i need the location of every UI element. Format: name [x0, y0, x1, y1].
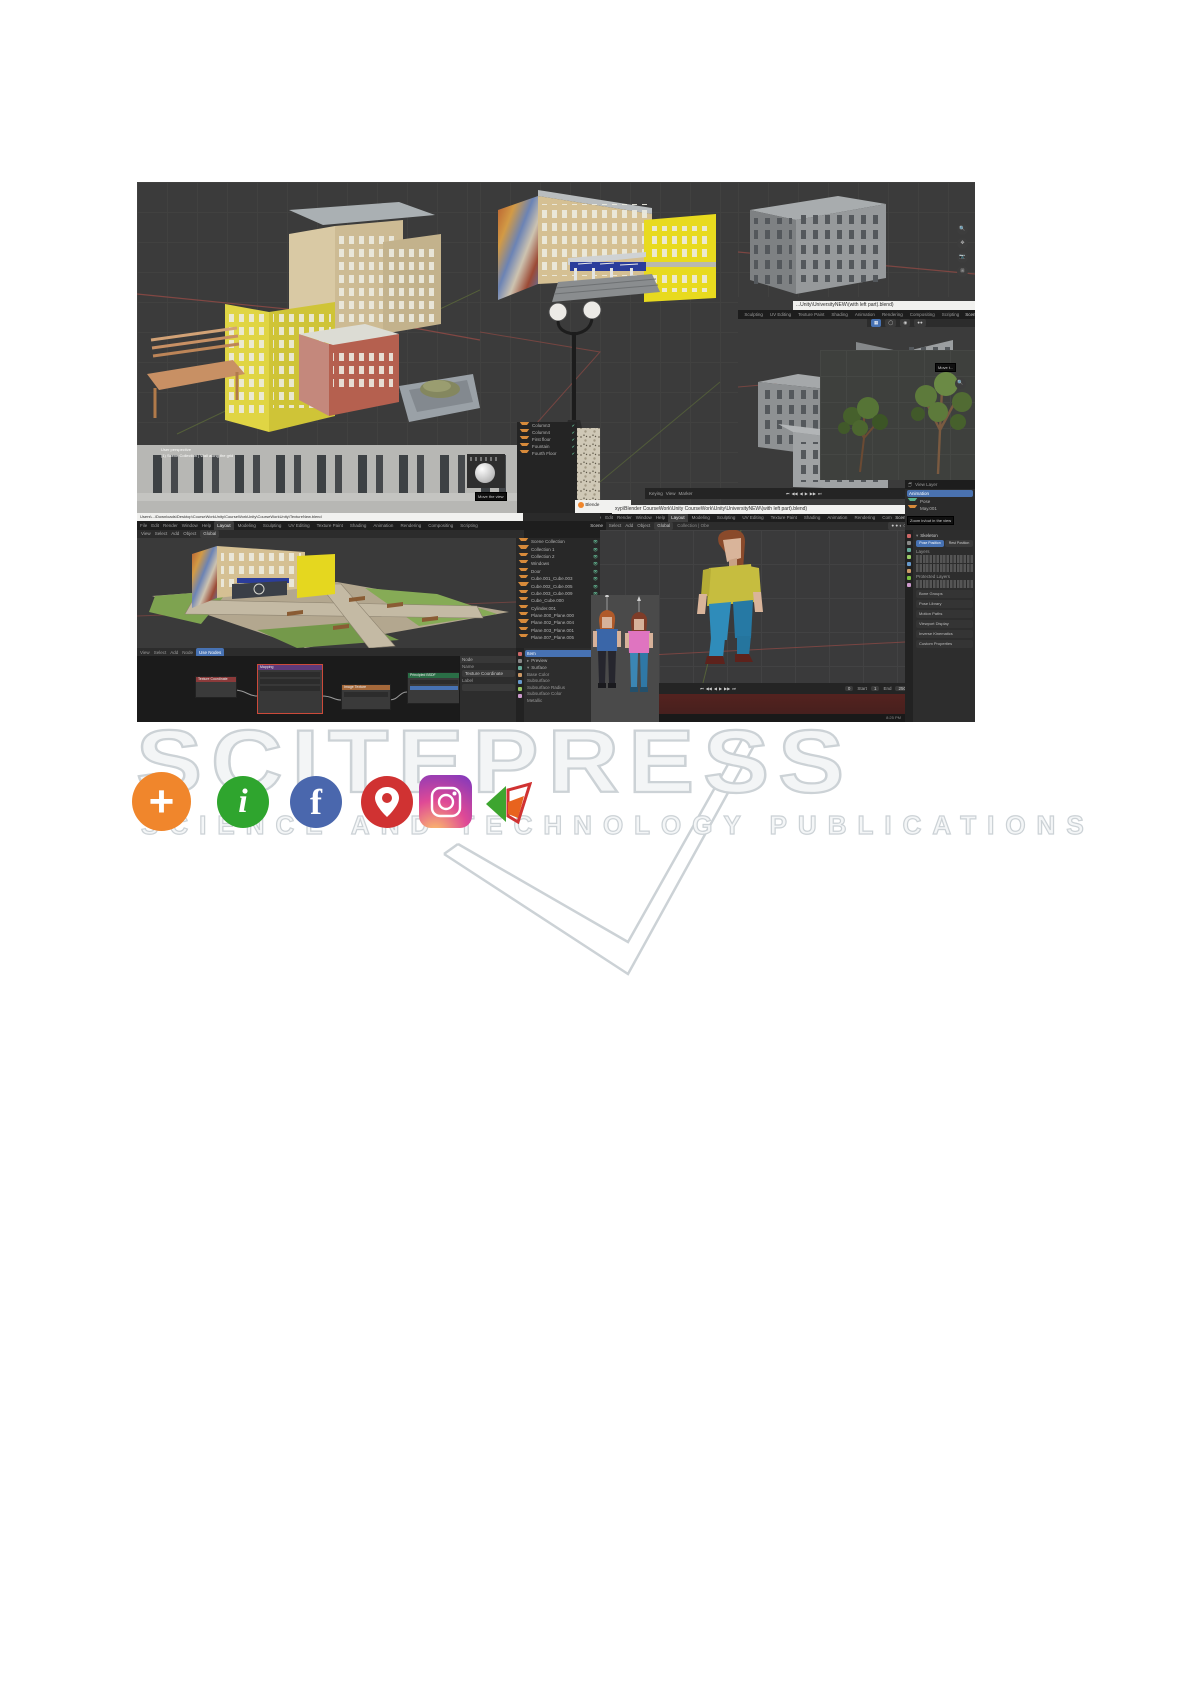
- menu-item[interactable]: Node: [182, 648, 193, 656]
- workspace-tab[interactable]: UV Editing: [739, 513, 766, 522]
- info-button[interactable]: i: [217, 776, 269, 828]
- properties-tab-icons[interactable]: [516, 648, 524, 722]
- playback-button[interactable]: ⏭: [732, 686, 736, 691]
- rest-position-button[interactable]: Rest Position: [945, 540, 973, 547]
- node-principled-bsdf[interactable]: Principled BSDF: [407, 672, 461, 704]
- workspace-tab[interactable]: Modeling: [235, 521, 259, 530]
- properties-section[interactable]: Motion Paths: [916, 610, 973, 618]
- outliner-small[interactable]: Column3✔Column4✔First floor✔Fountain✔Fou…: [517, 422, 577, 513]
- outliner-item[interactable]: Plane.007_Plane.005👁: [516, 634, 600, 641]
- view-layer-header: 🗇 View Layer: [905, 480, 975, 489]
- protected-layers-grid[interactable]: [916, 580, 973, 588]
- workspace-tab[interactable]: Texture Paint: [314, 521, 346, 530]
- toolrow-anim-window: View Select Add Object Global Collection…: [591, 522, 913, 530]
- workspace-tab[interactable]: Texture Paint: [795, 310, 827, 319]
- zoom-view-button[interactable]: 🔍: [957, 224, 968, 235]
- orientation-dropdown[interactable]: Global: [654, 522, 673, 530]
- playback-controls: ⏮◀◀◀▶▶▶⏭: [786, 491, 822, 496]
- viewport-menu[interactable]: Add: [171, 530, 179, 538]
- viewport-textured-campus[interactable]: [137, 538, 516, 648]
- instagram-icon: [429, 785, 463, 819]
- proportional-edit[interactable]: ◯: [885, 319, 896, 327]
- workspace-tab[interactable]: Sculpting: [714, 513, 739, 522]
- anim-item[interactable]: Pose: [905, 498, 975, 505]
- workspace-tab[interactable]: Scripting: [939, 310, 963, 319]
- menu-item[interactable]: Render: [617, 513, 632, 522]
- frame-field[interactable]: 0: [845, 686, 854, 691]
- menu-item[interactable]: File: [140, 521, 147, 530]
- workspace-tab[interactable]: Layout: [668, 513, 688, 522]
- textured-campus-scene: [137, 538, 516, 648]
- pose-properties-panel: 🗇 View Layer Animation Pose May.001 Zoom…: [905, 480, 975, 722]
- colored-buildings-scene: [137, 182, 480, 445]
- titlebar-middle-window[interactable]: ...Unity\UniversityNEW\(with left part).…: [793, 301, 975, 310]
- overlays-toggle[interactable]: ◉: [900, 319, 910, 327]
- character-model: [697, 530, 763, 664]
- workspace-tab[interactable]: Rendering: [397, 521, 424, 530]
- header-middle-window: LayoutModelingSculptingUV EditingTexture…: [738, 310, 975, 319]
- section-surface[interactable]: ▾Surface: [525, 664, 599, 671]
- playback-button[interactable]: ◀◀: [791, 491, 797, 496]
- workspace-tab[interactable]: Rendering: [851, 513, 878, 522]
- toolrow-middle-window: ▦ ◯ ◉ ●●: [867, 319, 975, 327]
- playback-button[interactable]: ⏮: [700, 686, 704, 691]
- pose-position-button[interactable]: Pose Position: [916, 540, 944, 547]
- character-pink-shirt: [625, 596, 653, 692]
- outliner-item[interactable]: First floor✔: [517, 436, 577, 443]
- outliner-item[interactable]: Collection 1👁: [516, 545, 600, 552]
- workspace-tabs: LayoutModelingSculptingUV EditingTexture…: [741, 310, 962, 319]
- menu-item[interactable]: Add: [170, 648, 178, 656]
- playback-button[interactable]: ⏮: [786, 491, 790, 496]
- menu-item[interactable]: Edit: [151, 521, 159, 530]
- workspace-tab[interactable]: Scripting: [457, 521, 481, 530]
- playback-button[interactable]: ◀: [714, 686, 717, 691]
- outliner-item[interactable]: Cube.001_Cube.003👁: [516, 575, 600, 582]
- publisher-logo-icon: [484, 782, 532, 824]
- instagram-button[interactable]: [419, 775, 472, 828]
- figure-collage: User perspective (1) Scene Collection | …: [137, 182, 975, 722]
- workspace-tab[interactable]: Animation: [370, 521, 396, 530]
- start-frame-field[interactable]: 1: [871, 686, 880, 691]
- facebook-button[interactable]: f: [290, 776, 342, 828]
- outliner-main[interactable]: ⌕ Scene Collection👁Collection 1👁Collecti…: [516, 530, 600, 648]
- view-layer-icon: 🗇: [908, 480, 912, 489]
- outliner-item[interactable]: Plane.002_Plane.004👁: [516, 619, 600, 626]
- outliner-item[interactable]: Column3✔: [517, 422, 577, 429]
- viewport-colored-buildings[interactable]: [137, 182, 480, 445]
- location-pin-button[interactable]: [361, 776, 413, 828]
- menu-item[interactable]: Window: [182, 521, 198, 530]
- outliner-item[interactable]: Plane.000_Plane.000👁: [516, 612, 600, 619]
- outliner-item[interactable]: Fourth Floor✔: [517, 450, 577, 457]
- playback-button[interactable]: ⏭: [818, 491, 822, 496]
- fountain-model: [399, 374, 480, 422]
- use-nodes-checkbox[interactable]: Use Nodes: [196, 648, 224, 656]
- menu-item[interactable]: Render: [163, 521, 178, 530]
- clock: 8:25 PM: [886, 715, 901, 720]
- snap-toggle[interactable]: ▦: [871, 319, 881, 327]
- playback-button[interactable]: ▶: [805, 491, 808, 496]
- properties-section[interactable]: Pose Library: [916, 600, 973, 608]
- playback-button[interactable]: ▶: [719, 686, 722, 691]
- viewport-menu[interactable]: Add: [625, 522, 633, 530]
- node-label-field[interactable]: [462, 684, 515, 691]
- move-view-tooltip-short: Move t...: [935, 363, 956, 372]
- workspace-tab[interactable]: Shading: [801, 513, 824, 522]
- material-field[interactable]: Metallic: [525, 697, 599, 704]
- menu-item[interactable]: View: [140, 648, 150, 656]
- viewport-overlay-text: User perspective (1) Scene Collection | …: [161, 447, 233, 459]
- viewport-menu[interactable]: Select: [155, 530, 168, 538]
- scene-selector[interactable]: Scene: [965, 310, 975, 319]
- outliner-item[interactable]: Scene Collection👁: [516, 538, 600, 545]
- header-anim-window: FileEditRenderWindowHelp LayoutModelingS…: [591, 513, 911, 522]
- ortho-toggle-button[interactable]: ⊞: [957, 266, 968, 277]
- playback-button[interactable]: ◀◀: [706, 686, 712, 691]
- outliner-item[interactable]: Cube.002_Cube.005👁: [516, 582, 600, 589]
- section-preview[interactable]: ▸Preview: [525, 657, 599, 664]
- node-name-field[interactable]: Texture Coordinate: [462, 670, 515, 677]
- menu-item[interactable]: Window: [636, 513, 652, 522]
- anim-item[interactable]: May.001: [905, 505, 975, 512]
- viewport-menu[interactable]: Object: [637, 522, 650, 530]
- menu-item[interactable]: Select: [154, 648, 167, 656]
- outliner-item[interactable]: Door👁: [516, 568, 600, 575]
- node-sidebar[interactable]: Node Name Texture Coordinate Label: [459, 656, 516, 722]
- properties-tab-icons[interactable]: [905, 530, 913, 722]
- playback-controls: ⏮◀◀◀▶▶▶⏭: [700, 686, 736, 691]
- shader-ball[interactable]: [475, 463, 495, 483]
- window-texture-editor: Users\...\Downloads\Desktop\CourseWorkUn…: [137, 513, 600, 722]
- anim-item[interactable]: Animation: [907, 490, 973, 497]
- location-pin-icon: [372, 785, 402, 819]
- viewport-menu[interactable]: View: [141, 530, 151, 538]
- workspace-tab[interactable]: Shading: [828, 310, 851, 319]
- properties-section[interactable]: Bone Groups: [916, 590, 973, 598]
- node-editor-header: ViewSelectAddNode Use Nodes: [137, 648, 516, 656]
- properties-section[interactable]: Inverse Kinematics: [916, 630, 973, 638]
- publisher-logo-button[interactable]: [484, 782, 532, 824]
- viewport-clay-building[interactable]: [738, 182, 975, 297]
- outliner-item[interactable]: Cube_Cube.000👁: [516, 597, 600, 604]
- outliner-item[interactable]: Windows👁: [516, 560, 600, 567]
- workspace-tab[interactable]: Sculpting: [741, 310, 766, 319]
- properties-section[interactable]: Custom Properties: [916, 640, 973, 648]
- outliner-item[interactable]: Plane.003_Plane.001👁: [516, 627, 600, 634]
- playback-button[interactable]: ▶▶: [724, 686, 730, 691]
- paper-page: SCITEPRESS SCIENCE AND TECHNOLOGY PUBLIC…: [0, 0, 1191, 1684]
- skeleton-section[interactable]: ▾Skeleton: [914, 532, 975, 539]
- wall-windows: [137, 455, 517, 493]
- outliner-item[interactable]: Collection 2👁: [516, 553, 600, 560]
- menu-item[interactable]: Help: [202, 521, 211, 530]
- menu-item[interactable]: Help: [656, 513, 665, 522]
- orientation-dropdown[interactable]: Global: [200, 530, 219, 538]
- toolrow-left-window: View Select Add Object Global: [137, 530, 524, 538]
- titlebar-left-window[interactable]: Users\...\Downloads\Desktop\CourseWorkUn…: [137, 513, 523, 521]
- viewport-menu[interactable]: Select: [609, 522, 622, 530]
- workspace-tab[interactable]: UV Editing: [767, 310, 794, 319]
- share-plus-button[interactable]: +: [132, 772, 191, 831]
- move-view-tooltip: Move the view: [475, 492, 507, 501]
- workspace-tab[interactable]: Layout: [214, 521, 234, 530]
- tree-left: [838, 397, 888, 472]
- workspace-tabs: LayoutModelingSculptingUV EditingTexture…: [214, 521, 481, 530]
- camera-view-button[interactable]: 📷: [957, 252, 968, 263]
- workspace-tab[interactable]: Animation: [852, 310, 878, 319]
- workspace-tab[interactable]: Animation: [824, 513, 850, 522]
- playback-button[interactable]: ▶▶: [810, 491, 816, 496]
- material-preview-chip: [467, 454, 505, 488]
- watermark-subtitle: SCIENCE AND TECHNOLOGY PUBLICATIONS: [141, 810, 1095, 841]
- armature-layers-grid[interactable]: [916, 564, 973, 572]
- outliner-item[interactable]: Cylinder.001👁: [516, 605, 600, 612]
- workspace-tab[interactable]: Shading: [347, 521, 370, 530]
- playback-button[interactable]: ◀: [800, 491, 803, 496]
- menu-item[interactable]: Edit: [605, 513, 613, 522]
- material-slot[interactable]: Item: [525, 650, 599, 657]
- scene-selector[interactable]: Scene: [590, 521, 603, 530]
- node-image-texture[interactable]: Image Texture: [341, 684, 391, 710]
- node-texture-coordinate[interactable]: Texture Coordinate: [195, 676, 237, 698]
- zoom-view-tooltip: Zoom in/out in the view: [907, 516, 954, 525]
- zoom-view-button[interactable]: 🔍: [955, 378, 966, 389]
- blender-logo-icon: [578, 502, 584, 508]
- workspace-tab[interactable]: Compositing: [879, 513, 892, 522]
- workspace-tabs: LayoutModelingSculptingUV EditingTexture…: [668, 513, 892, 522]
- node-editor[interactable]: ViewSelectAddNode Use Nodes Texture Coor…: [137, 648, 516, 722]
- move-view-button[interactable]: ✥: [957, 238, 968, 249]
- header-left-window: FileEditRenderWindowHelp LayoutModelingS…: [137, 521, 606, 530]
- workspace-tab[interactable]: Modeling: [689, 513, 713, 522]
- breadcrumb: Collection | Obe: [677, 522, 709, 530]
- node-mapping[interactable]: Mapping: [257, 664, 323, 714]
- timeline-menus[interactable]: KeyingViewMarker: [649, 491, 692, 496]
- workspace-tab[interactable]: Texture Paint: [768, 513, 800, 522]
- workspace-tab[interactable]: Sculpting: [260, 521, 285, 530]
- workspace-tab[interactable]: Rendering: [879, 310, 906, 319]
- properties-section[interactable]: Viewport Display: [916, 620, 973, 628]
- shading-solid[interactable]: ●●: [914, 319, 925, 327]
- workspace-tab[interactable]: UV Editing: [285, 521, 312, 530]
- material-properties[interactable]: Item ▸Preview ▾Surface Base ColorSubsurf…: [516, 648, 600, 722]
- outliner-item[interactable]: Column4✔: [517, 429, 577, 436]
- workspace-tab[interactable]: Compositing: [425, 521, 456, 530]
- character-blue-shirt: [593, 595, 621, 688]
- outliner-item[interactable]: Cube.003_Cube.009👁: [516, 590, 600, 597]
- viewport-menu[interactable]: Object: [183, 530, 196, 538]
- armature-layers-grid[interactable]: [916, 555, 973, 563]
- app-menus: FileEditRenderWindowHelp: [140, 521, 211, 530]
- workspace-tab[interactable]: Compositing: [907, 310, 938, 319]
- clay-building-scene: [738, 182, 975, 297]
- outliner-item[interactable]: Fountain✔: [517, 443, 577, 450]
- two-characters-scene: [591, 595, 659, 722]
- viewport-two-characters[interactable]: [591, 595, 659, 722]
- viewport-wall-closeup[interactable]: User perspective (1) Scene Collection | …: [137, 445, 517, 513]
